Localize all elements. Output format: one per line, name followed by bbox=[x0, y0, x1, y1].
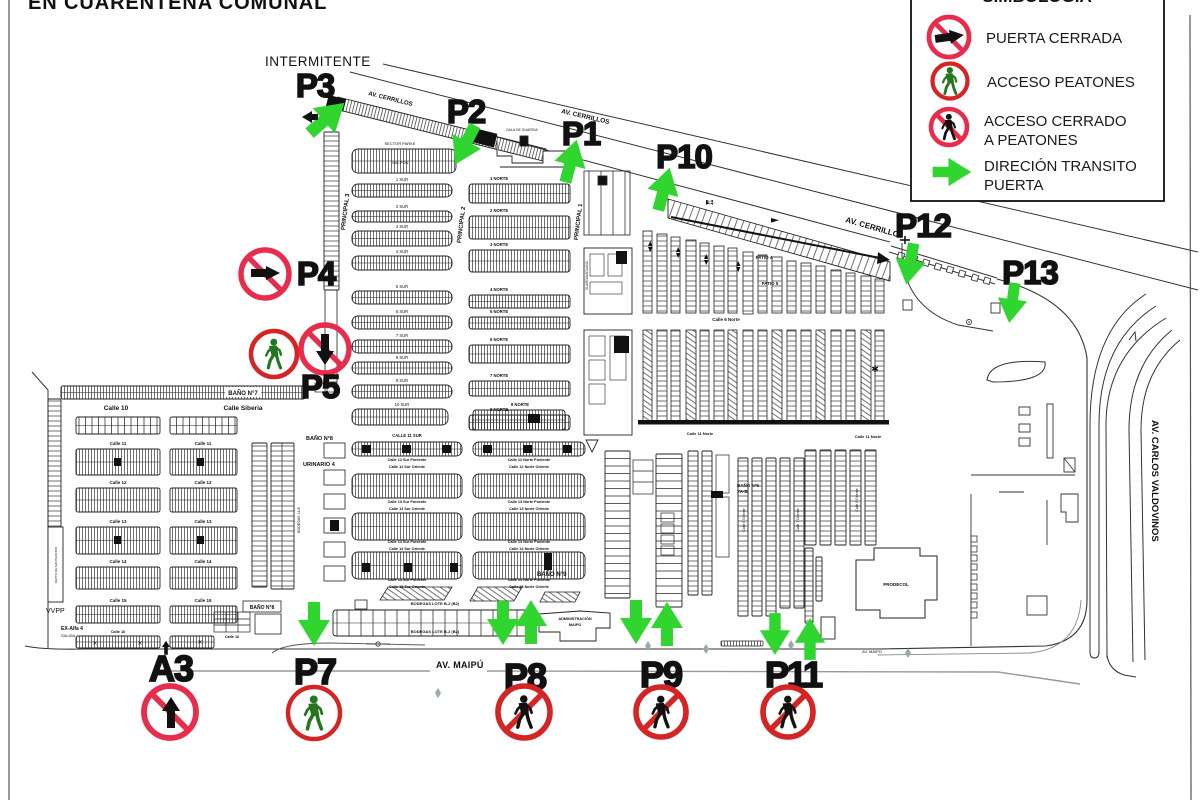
svg-text:7 SUR: 7 SUR bbox=[396, 333, 408, 338]
svg-text:BAÑO N°7: BAÑO N°7 bbox=[228, 390, 258, 397]
svg-text:✱: ✱ bbox=[871, 364, 879, 374]
svg-text:4 NORTE: 4 NORTE bbox=[490, 287, 508, 292]
svg-text:PATIO 5: PATIO 5 bbox=[762, 281, 779, 286]
svg-text:Calle 12 Sur Oriente: Calle 12 Sur Oriente bbox=[389, 465, 425, 469]
svg-text:1 NORTE: 1 NORTE bbox=[490, 176, 508, 181]
svg-text:Calle 13 Norte Oriente: Calle 13 Norte Oriente bbox=[509, 507, 549, 511]
svg-text:Calle 15 Sur Poniente: Calle 15 Sur Poniente bbox=[388, 578, 427, 582]
svg-text:Calle 15: Calle 15 bbox=[194, 598, 212, 603]
svg-text:9 SUR: 9 SUR bbox=[396, 378, 408, 383]
svg-text:Calle 11: Calle 11 bbox=[195, 441, 212, 446]
svg-text:P10: P10 bbox=[656, 138, 712, 175]
svg-text:✕: ✕ bbox=[137, 641, 142, 647]
svg-text:Calle 12: Calle 12 bbox=[194, 480, 212, 485]
svg-text:Calle 13: Calle 13 bbox=[194, 519, 212, 524]
svg-text:✕: ✕ bbox=[92, 641, 97, 647]
svg-text:Calle 13: Calle 13 bbox=[109, 519, 127, 524]
svg-text:SALA DE GUARDIA: SALA DE GUARDIA bbox=[506, 128, 538, 132]
svg-text:P5: P5 bbox=[301, 368, 340, 405]
svg-text:AV. CARLOS VALDOVINOS: AV. CARLOS VALDOVINOS bbox=[1149, 420, 1160, 542]
svg-text:DEPTO DE MANTENCIÓN: DEPTO DE MANTENCIÓN bbox=[53, 547, 58, 583]
svg-text:Calle 8 Oriente: Calle 8 Oriente bbox=[855, 488, 859, 511]
svg-text:3 NORTE: 3 NORTE bbox=[490, 242, 508, 247]
svg-text:ACCESO PEATONES: ACCESO PEATONES bbox=[987, 74, 1135, 91]
svg-text:SIMBOLOGÍA: SIMBOLOGÍA bbox=[982, 0, 1092, 6]
svg-text:Calle 7 Oriente: Calle 7 Oriente bbox=[796, 508, 800, 531]
svg-text:Calle 15: Calle 15 bbox=[109, 598, 127, 603]
svg-text:6 SUR: 6 SUR bbox=[396, 309, 408, 314]
svg-text:BAÑO N°9: BAÑO N°9 bbox=[537, 571, 567, 578]
svg-text:SECTOR PARKE: SECTOR PARKE bbox=[385, 141, 416, 146]
svg-text:2 SUR: 2 SUR bbox=[396, 204, 408, 209]
svg-text:9 NORTE: 9 NORTE bbox=[511, 402, 529, 407]
svg-text:5 SUR: 5 SUR bbox=[396, 284, 408, 289]
svg-text:PATIO 4: PATIO 4 bbox=[756, 255, 773, 260]
svg-text:DIRECIÓN TRANSITO: DIRECIÓN TRANSITO bbox=[984, 158, 1137, 175]
svg-text:AV. MAIPÚ: AV. MAIPÚ bbox=[436, 659, 484, 670]
svg-text:Calle 10: Calle 10 bbox=[104, 405, 129, 412]
svg-text:3 SUR: 3 SUR bbox=[396, 224, 408, 229]
svg-text:Calle 6 Oriente: Calle 6 Oriente bbox=[742, 508, 746, 531]
svg-text:8 SUR: 8 SUR bbox=[396, 355, 408, 360]
svg-text:Calle 14 Norte Oriente: Calle 14 Norte Oriente bbox=[509, 547, 549, 551]
svg-text:Calle 13 Sur Poniente: Calle 13 Sur Poniente bbox=[388, 500, 427, 504]
svg-text:6 NORTE: 6 NORTE bbox=[490, 337, 508, 342]
svg-text:Calle 14 Sur Oriente: Calle 14 Sur Oriente bbox=[389, 547, 425, 551]
svg-text:Calle 6 Norte: Calle 6 Norte bbox=[712, 317, 740, 322]
svg-text:PUERTA CERRADA: PUERTA CERRADA bbox=[986, 30, 1122, 47]
svg-text:PRODECOL: PRODECOL bbox=[883, 582, 909, 587]
svg-text:Calle 12 Norte Poniente: Calle 12 Norte Poniente bbox=[508, 458, 550, 462]
svg-text:ADMINISTRACIÓN: ADMINISTRACIÓN bbox=[558, 616, 592, 621]
svg-text:1 SUR: 1 SUR bbox=[396, 177, 408, 182]
svg-text:Calle 12: Calle 12 bbox=[109, 480, 127, 485]
svg-text:BODEGAS 14-B: BODEGAS 14-B bbox=[297, 507, 301, 533]
svg-text:A PEATONES: A PEATONES bbox=[984, 132, 1078, 149]
svg-text:Calle 15 Norte Poniente: Calle 15 Norte Poniente bbox=[508, 578, 550, 582]
svg-text:Calle 11: Calle 11 bbox=[110, 441, 127, 446]
svg-text:ACCESO CERRADO: ACCESO CERRADO bbox=[984, 113, 1127, 130]
svg-text:Calle 14: Calle 14 bbox=[194, 559, 212, 564]
svg-text:Calle 12 Sur Poniente: Calle 12 Sur Poniente bbox=[388, 458, 427, 462]
svg-text:4 SUR: 4 SUR bbox=[396, 249, 408, 254]
svg-text:P12: P12 bbox=[895, 207, 951, 244]
svg-text:P2: P2 bbox=[447, 93, 486, 130]
svg-text:URINARIO 4: URINARIO 4 bbox=[303, 462, 336, 468]
svg-text:P4: P4 bbox=[297, 255, 337, 292]
svg-text:Calle 16: Calle 16 bbox=[225, 635, 239, 639]
svg-text:BAÑO N°8: BAÑO N°8 bbox=[306, 435, 333, 442]
svg-text:EX-Alfa 4: EX-Alfa 4 bbox=[61, 626, 83, 632]
svg-text:Calle 16: Calle 16 bbox=[111, 630, 125, 634]
svg-text:Calle 13 Norte Poniente: Calle 13 Norte Poniente bbox=[508, 500, 550, 504]
svg-text:BODEGAS LOTE B-2 (B2): BODEGAS LOTE B-2 (B2) bbox=[411, 601, 460, 606]
svg-text:Calle 13 Sur Oriente: Calle 13 Sur Oriente bbox=[389, 507, 425, 511]
svg-text:2 NORTE: 2 NORTE bbox=[490, 208, 508, 213]
svg-text:GUARDIA/ADUANA: GUARDIA/ADUANA bbox=[585, 260, 589, 290]
svg-text:A3: A3 bbox=[149, 648, 193, 689]
svg-text:GALPÓN: GALPÓN bbox=[392, 160, 409, 165]
svg-text:7 NORTE: 7 NORTE bbox=[490, 373, 508, 378]
svg-text:VVPP: VVPP bbox=[46, 608, 65, 615]
svg-text:EN CUARENTENA COMUNAL: EN CUARENTENA COMUNAL bbox=[28, 0, 327, 14]
svg-text:Calle 14 Sur Poniente: Calle 14 Sur Poniente bbox=[388, 540, 427, 544]
svg-text:✕: ✕ bbox=[197, 640, 202, 646]
svg-text:10 SUR: 10 SUR bbox=[395, 402, 410, 407]
svg-text:BODEGAS LOTE B-2 (B2): BODEGAS LOTE B-2 (B2) bbox=[411, 629, 460, 634]
svg-text:5 NORTE: 5 NORTE bbox=[490, 309, 508, 314]
svg-text:Calle 12 Norte Oriente: Calle 12 Norte Oriente bbox=[509, 465, 549, 469]
svg-text:CALLE 11 SUR: CALLE 11 SUR bbox=[392, 433, 422, 438]
svg-text:PUERTA: PUERTA bbox=[984, 177, 1043, 194]
svg-text:BAÑO N°8: BAÑO N°8 bbox=[250, 604, 275, 611]
svg-text:Calle 14 Norte Poniente: Calle 14 Norte Poniente bbox=[508, 540, 550, 544]
svg-text:AV. MAIPO: AV. MAIPO bbox=[862, 649, 882, 654]
svg-text:Calle 11 Norte: Calle 11 Norte bbox=[687, 431, 714, 436]
svg-text:MAIPÚ: MAIPÚ bbox=[569, 622, 581, 627]
svg-text:P1: P1 bbox=[562, 115, 601, 152]
svg-text:Calle 14: Calle 14 bbox=[109, 559, 127, 564]
svg-text:Calle 11 Norte: Calle 11 Norte bbox=[855, 434, 882, 439]
svg-text:SALIDA: SALIDA bbox=[61, 633, 76, 638]
svg-text:Calle Siberia: Calle Siberia bbox=[223, 405, 262, 412]
